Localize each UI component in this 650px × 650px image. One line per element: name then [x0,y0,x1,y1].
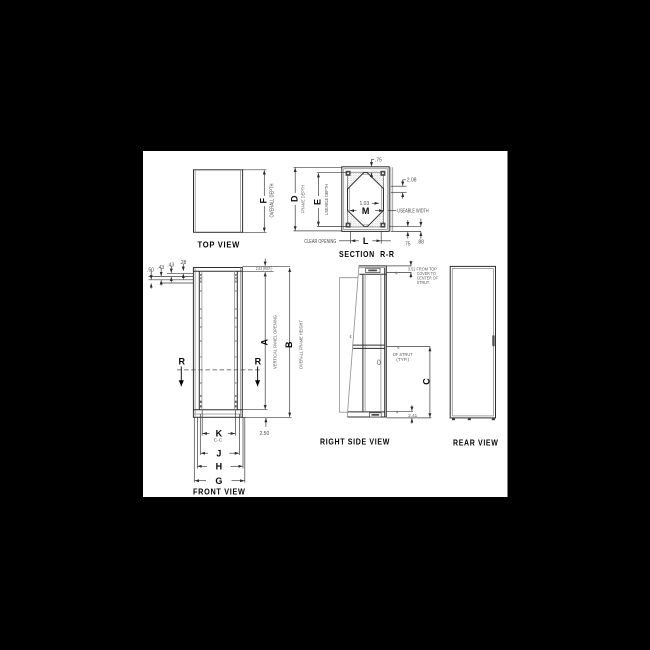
svg-text:¢: ¢ [350,334,353,339]
svg-text:REAR VIEW: REAR VIEW [453,437,499,447]
svg-text:USEABLE DEPTH: USEABLE DEPTH [324,184,329,215]
svg-text:OF STRUT: OF STRUT [393,352,413,357]
svg-text:¢: ¢ [395,271,398,276]
svg-text:¢: ¢ [396,410,399,415]
svg-text:J: J [216,448,221,458]
svg-text:.50: .50 [147,268,154,274]
svg-text:.43: .43 [167,262,174,268]
svg-text:F: F [259,198,269,204]
svg-text:VERTICAL PANEL OPENING: VERTICAL PANEL OPENING [272,315,277,369]
svg-text:SECTION R-R: SECTION R-R [339,249,395,259]
svg-text:CLEAR OPENING: CLEAR OPENING [304,239,336,245]
svg-text:STRUT.: STRUT. [417,280,430,285]
svg-text:2.62 (REF.): 2.62 (REF.) [256,266,273,271]
svg-text:RIGHT SIDE VIEW: RIGHT SIDE VIEW [320,436,390,446]
svg-text:2.08: 2.08 [407,178,417,184]
svg-text:(TYP.): (TYP.) [396,357,409,362]
svg-text:L: L [363,236,369,246]
svg-text:C-C: C-C [214,438,223,443]
svg-text:M: M [362,206,370,216]
svg-text:E: E [313,199,323,205]
svg-text:.43: .43 [157,265,164,271]
svg-text:G: G [215,476,222,486]
svg-text:R: R [178,357,185,367]
svg-text:H: H [216,462,223,472]
svg-text:C: C [421,378,431,385]
svg-text:2.50: 2.50 [260,431,270,437]
svg-text:.75: .75 [404,242,411,248]
svg-text:FRONT VIEW: FRONT VIEW [193,486,246,496]
svg-text:B: B [284,341,294,348]
svg-text:D: D [289,195,299,202]
svg-text:A: A [260,339,270,346]
svg-text:OVERALL DEPTH: OVERALL DEPTH [270,183,276,217]
svg-text:.88: .88 [417,239,424,245]
svg-text:USEABLE WIDTH: USEABLE WIDTH [397,208,429,214]
svg-text:FRAME DEPTH: FRAME DEPTH [300,185,305,213]
svg-text:.28: .28 [180,260,187,266]
svg-text:2.41: 2.41 [408,413,417,418]
svg-text:R: R [255,357,262,367]
svg-text:¢: ¢ [397,345,400,350]
svg-text:.75: .75 [375,157,382,163]
svg-text:TOP VIEW: TOP VIEW [198,240,241,250]
svg-text:OVERALL FRAME HEIGHT: OVERALL FRAME HEIGHT [298,320,303,369]
